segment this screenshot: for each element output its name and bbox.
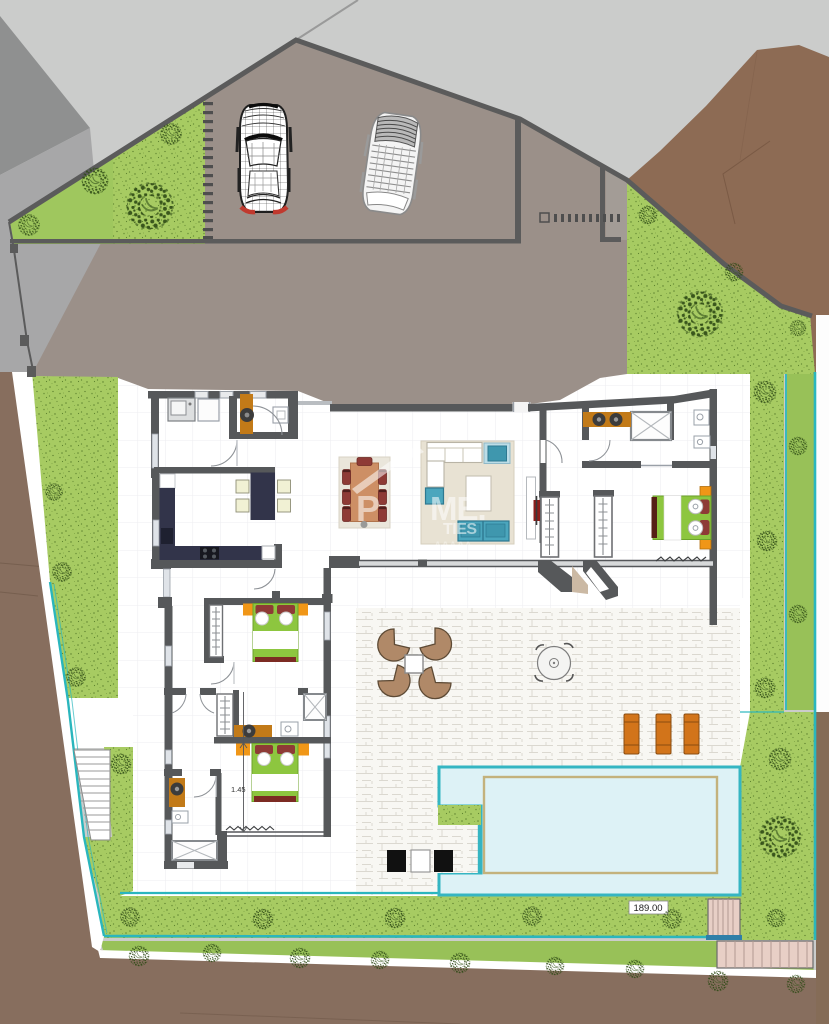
svg-text:ΛΔΛΔΛ: ΛΔΛΔΛ [434,540,472,552]
svg-text:1.45: 1.45 [231,785,246,794]
svg-text:P: P [356,488,380,529]
svg-text:TIES: TIES [443,521,477,538]
svg-text:189.00: 189.00 [633,903,662,914]
